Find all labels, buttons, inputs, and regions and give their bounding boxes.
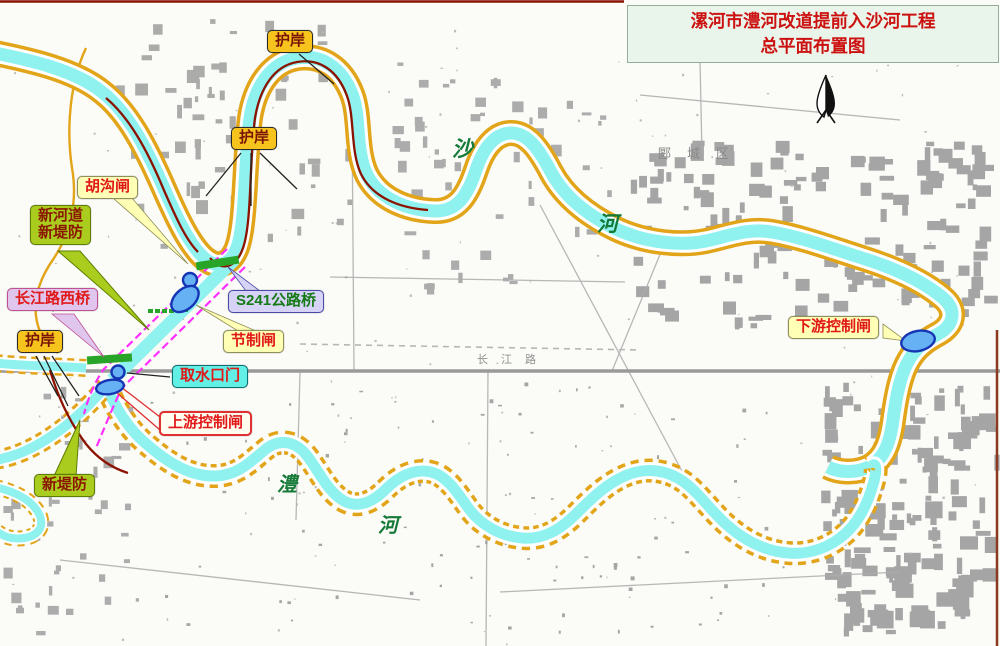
label-s241-bridge: S241公路桥: [228, 290, 324, 313]
label-new-channel-line2: 新堤防: [38, 225, 83, 242]
label-new-dike: 新堤防: [34, 474, 95, 497]
new-channel-water: [112, 260, 234, 380]
district-name: 郾城区: [658, 143, 745, 162]
label-revetment-mid: 护岸: [231, 127, 277, 150]
north-arrow-icon: [817, 75, 835, 123]
title-line-1: 漯河市澧河改道提前入沙河工程: [628, 9, 998, 34]
label-revetment-left: 护岸: [17, 330, 63, 353]
label-upstream-control-gate: 上游控制闸: [159, 411, 252, 436]
map-container: 沙 河 澧 河 郾城区 长江路 漯河市澧河改道提前入沙河工程 总平面布置图 护岸…: [0, 0, 1000, 646]
label-revetment-top: 护岸: [267, 30, 313, 53]
river-li-upstream: [0, 363, 106, 539]
water-intake-structure: [112, 366, 125, 379]
river-name-sha-1: 沙: [452, 137, 475, 161]
label-new-channel-line1: 新河道: [38, 208, 83, 225]
title-box: 漯河市澧河改道提前入沙河工程 总平面布置图: [627, 5, 999, 63]
label-new-channel-dike: 新河道 新堤防: [30, 205, 91, 245]
label-hugou-gate: 胡沟闸: [77, 176, 138, 199]
label-downstream-control-gate: 下游控制闸: [788, 316, 879, 339]
label-changjiang-west-bridge: 长江路西桥: [7, 288, 98, 311]
label-regulating-gate: 节制闸: [223, 330, 284, 353]
river-name-li-1: 澧: [277, 473, 300, 496]
label-water-intake-gate: 取水口门: [172, 365, 248, 388]
river-name-li-2: 河: [378, 515, 402, 537]
title-line-2: 总平面布置图: [628, 34, 998, 59]
road-name-changjiang: 长江路: [477, 351, 549, 367]
